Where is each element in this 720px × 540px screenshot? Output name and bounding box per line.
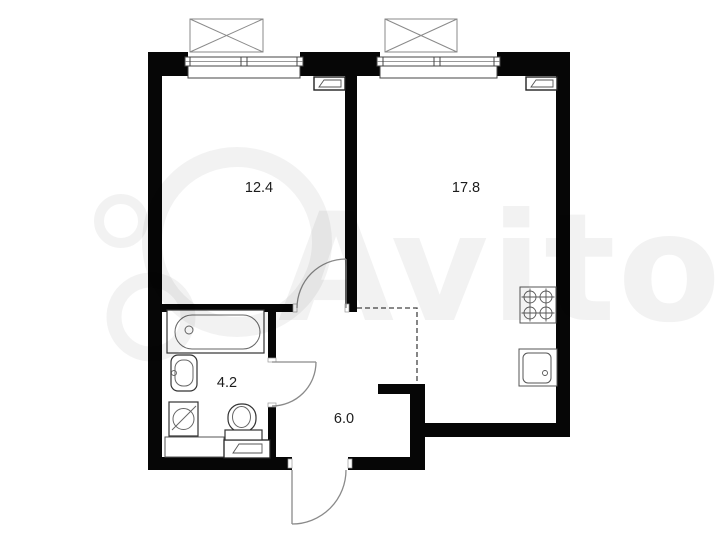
watermark-circle-small	[99, 199, 143, 243]
watermark-circle-large	[152, 157, 322, 327]
bathroom-area-label: 4.2	[217, 375, 237, 391]
toilet-icon	[225, 404, 262, 440]
counter-icon	[165, 437, 224, 457]
wall-right	[556, 52, 570, 437]
window-icon	[377, 57, 500, 78]
wall-entry-side	[410, 384, 425, 468]
ac-unit-icon	[385, 19, 457, 52]
washing-machine-icon	[169, 402, 198, 436]
wall-bath-right-upper	[268, 312, 276, 362]
watermark-text: Avito	[278, 182, 720, 356]
stove-icon	[520, 287, 556, 323]
washbasin-icon	[171, 355, 197, 391]
living-room-area-label: 12.4	[245, 180, 273, 196]
living-room-door-icon	[297, 259, 346, 308]
bathtub-icon	[167, 310, 264, 353]
wall-bottom-b	[348, 457, 425, 470]
kitchen-living-room-area-label: 17.8	[452, 180, 480, 196]
door-jambs	[268, 304, 352, 468]
wall-top-a	[148, 52, 188, 76]
vent-duct-icon	[526, 77, 557, 90]
wall-entry-jog	[378, 384, 425, 394]
bathroom-door-icon	[272, 362, 316, 406]
wall-kitchen-bottom	[410, 423, 570, 437]
entrance-door-icon	[292, 470, 346, 524]
kitchen-sink-icon	[519, 349, 557, 386]
walls	[148, 52, 570, 470]
vent-duct-icon	[314, 77, 345, 90]
wall-middle	[345, 76, 357, 312]
wall-top-b	[300, 52, 380, 76]
vent-duct-icon	[224, 440, 270, 458]
ac-unit-icon	[190, 19, 263, 52]
wall-left	[148, 52, 162, 470]
floorplan-drawing: 12.4 17.8 4.2 6.0 Avito	[0, 0, 720, 540]
window-icon	[185, 57, 303, 78]
wall-bottom-a	[148, 457, 292, 470]
room-boundary-dashed-line	[357, 308, 417, 384]
hallway-area-label: 6.0	[334, 411, 354, 427]
floorplan: 12.4 17.8 4.2 6.0 Avito	[0, 0, 720, 540]
